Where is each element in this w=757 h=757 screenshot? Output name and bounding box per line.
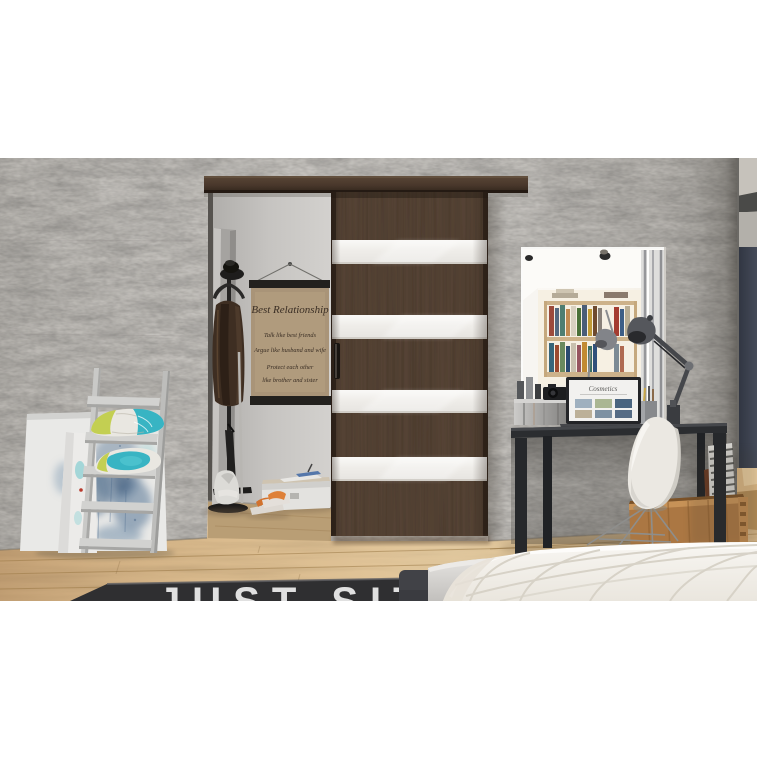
svg-text:Cosmetics: Cosmetics	[589, 385, 618, 393]
svg-text:Protect each other: Protect each other	[266, 364, 314, 371]
svg-text:Argue like husband and wife: Argue like husband and wife	[253, 347, 326, 354]
svg-text:like brother and sister: like brother and sister	[262, 377, 318, 384]
svg-text:Best Relationship: Best Relationship	[251, 304, 329, 316]
svg-text:Talk like best friends: Talk like best friends	[264, 332, 317, 339]
